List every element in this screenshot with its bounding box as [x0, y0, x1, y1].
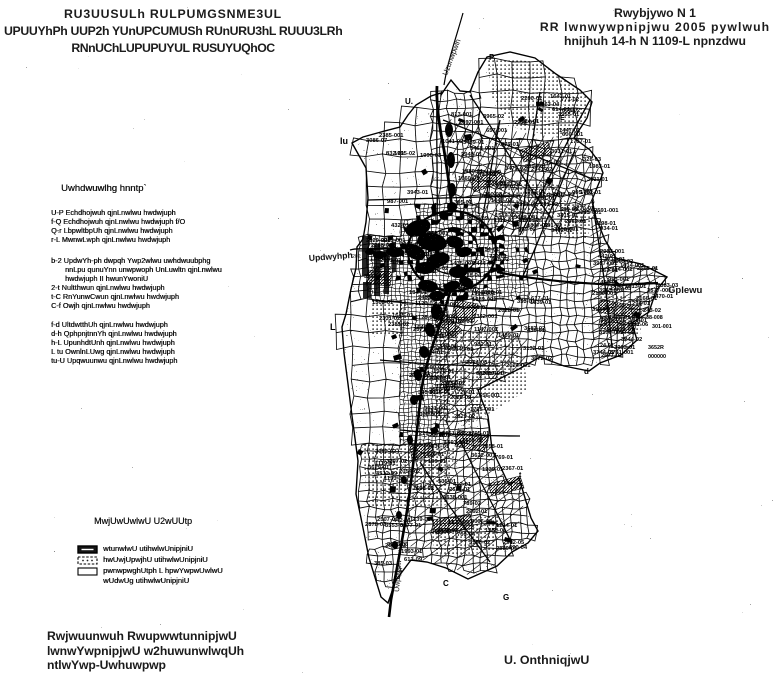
svg-text:3111-01: 3111-01: [432, 334, 453, 340]
svg-text:Iu: Iu: [340, 136, 348, 146]
svg-text:3965-02: 3965-02: [483, 114, 504, 120]
svg-text:3123-001: 3123-001: [453, 284, 478, 290]
svg-text:Uwpqwpw: Uwpqwpw: [394, 559, 403, 592]
svg-text:3297-02: 3297-02: [386, 459, 407, 465]
svg-text:d: d: [584, 367, 589, 376]
svg-text:3845-01: 3845-01: [452, 347, 474, 353]
svg-text:1983-01: 1983-01: [589, 164, 611, 170]
svg-text:3703-01: 3703-01: [467, 305, 489, 311]
svg-text:2017-09: 2017-09: [553, 192, 575, 198]
svg-text:2028-01: 2028-01: [498, 308, 520, 314]
svg-text:2941-02: 2941-02: [531, 167, 552, 173]
svg-text:3490-02: 3490-02: [441, 319, 462, 325]
svg-text:771-02: 771-02: [561, 97, 579, 103]
svg-text:C: C: [443, 579, 449, 588]
svg-text:2874-01: 2874-01: [423, 452, 445, 458]
svg-text:3921-001: 3921-001: [424, 406, 449, 412]
svg-text:2591-001: 2591-001: [594, 208, 619, 214]
svg-text:1001-001: 1001-001: [435, 302, 460, 308]
svg-text:606-001: 606-001: [562, 132, 584, 138]
svg-text:1342-001: 1342-001: [473, 314, 498, 320]
svg-text:38-008: 38-008: [646, 315, 663, 321]
svg-text:987-001: 987-001: [387, 199, 409, 205]
svg-text:2200-01: 2200-01: [521, 96, 543, 102]
svg-text:1983-06: 1983-06: [423, 252, 445, 258]
svg-text:789-02: 789-02: [463, 501, 481, 507]
svg-text:982-01: 982-01: [474, 342, 493, 348]
svg-text:1128-001: 1128-001: [415, 315, 440, 321]
svg-text:656-001: 656-001: [479, 393, 501, 399]
svg-text:3415-01: 3415-01: [557, 213, 579, 219]
svg-text:3652R: 3652R: [648, 345, 664, 351]
svg-text:535-01: 535-01: [438, 479, 457, 485]
svg-text:3062-02: 3062-02: [375, 449, 396, 455]
svg-text:202: 202: [352, 254, 361, 260]
svg-text:1120-02: 1120-02: [415, 301, 436, 307]
svg-text:2062-01: 2062-01: [565, 219, 587, 225]
svg-text:3158-02: 3158-02: [469, 540, 490, 546]
svg-text:301-001: 301-001: [652, 324, 672, 330]
svg-text:2054-02: 2054-02: [399, 469, 420, 475]
svg-text:3029-001: 3029-001: [366, 238, 391, 244]
svg-text:1654-01: 1654-01: [434, 243, 456, 249]
svg-text:2385-02: 2385-02: [388, 322, 409, 328]
svg-text:3104-07: 3104-07: [592, 307, 613, 313]
svg-text:2831-02: 2831-02: [380, 258, 401, 264]
svg-text:729-01: 729-01: [489, 254, 508, 260]
svg-text:1116-001: 1116-001: [414, 231, 439, 237]
svg-text:608-02: 608-02: [373, 266, 391, 272]
svg-text:2675-001: 2675-001: [395, 251, 420, 257]
svg-text:1990-03: 1990-03: [420, 153, 442, 159]
svg-text:363-01: 363-01: [600, 268, 619, 274]
svg-text:953-001: 953-001: [608, 277, 630, 283]
svg-text:2485-01: 2485-01: [418, 295, 440, 301]
svg-text:1160-02: 1160-02: [413, 486, 434, 492]
svg-text:P: P: [489, 53, 495, 62]
svg-text:1995-02: 1995-02: [394, 151, 415, 157]
svg-text:Gplewu: Gplewu: [668, 285, 703, 296]
svg-text:3683-02: 3683-02: [524, 326, 545, 332]
svg-text:1725-001: 1725-001: [470, 407, 495, 413]
svg-text:3266-02: 3266-02: [364, 274, 385, 280]
svg-text:1989-001: 1989-001: [472, 297, 497, 303]
svg-text:1993-01: 1993-01: [401, 549, 423, 555]
svg-text:1505-01: 1505-01: [372, 300, 394, 306]
svg-text:3439-01: 3439-01: [463, 140, 485, 146]
svg-text:3943-01: 3943-01: [407, 190, 429, 196]
svg-text:238-04: 238-04: [463, 273, 482, 279]
svg-text:1435-001: 1435-001: [450, 261, 475, 267]
svg-text:353-01: 353-01: [517, 299, 536, 305]
svg-text:2441-08: 2441-08: [415, 268, 437, 274]
svg-text:3132-01: 3132-01: [523, 346, 545, 352]
svg-text:614-01: 614-01: [552, 107, 571, 113]
svg-text:1153-01: 1153-01: [384, 476, 406, 482]
svg-text:000000: 000000: [648, 354, 666, 360]
svg-text:2385-001: 2385-001: [379, 133, 404, 139]
svg-text:995-001: 995-001: [572, 190, 594, 196]
svg-text:1414-01: 1414-01: [422, 350, 444, 356]
svg-text:2617-01: 2617-01: [482, 371, 504, 377]
svg-text:2110-09: 2110-09: [467, 216, 489, 222]
svg-text:Updwyhph: Updwyhph: [308, 250, 353, 263]
svg-text:3011-01: 3011-01: [587, 177, 609, 183]
svg-text:3565-03: 3565-03: [387, 542, 409, 548]
svg-text:1737-01: 1737-01: [570, 139, 592, 145]
svg-text:934-01: 934-01: [600, 226, 619, 232]
svg-text:2571-01: 2571-01: [413, 327, 435, 333]
svg-text:385-03: 385-03: [374, 561, 393, 567]
svg-text:1214-01: 1214-01: [496, 523, 518, 529]
svg-text:t: t: [519, 472, 522, 479]
svg-text:3795-01: 3795-01: [468, 431, 490, 437]
svg-text:690-04: 690-04: [509, 545, 528, 551]
svg-text:769-01: 769-01: [495, 455, 514, 461]
svg-text:q: q: [570, 105, 575, 114]
svg-text:1754-01: 1754-01: [478, 247, 500, 253]
svg-text:G: G: [503, 593, 509, 602]
svg-text:3672-02: 3672-02: [531, 356, 552, 362]
svg-text:469-01: 469-01: [412, 371, 431, 377]
svg-text:813-001: 813-001: [451, 112, 473, 118]
svg-text:E: E: [560, 115, 565, 122]
svg-text:3966-01: 3966-01: [400, 242, 422, 248]
svg-text:294-01: 294-01: [632, 301, 651, 307]
svg-text:2238-01: 2238-01: [514, 120, 536, 126]
svg-text:3066-001: 3066-001: [416, 412, 441, 418]
svg-text:2224-08: 2224-08: [466, 360, 488, 366]
svg-text:L: L: [330, 322, 336, 332]
svg-text:1041-02: 1041-02: [442, 139, 463, 145]
svg-text:1645-01: 1645-01: [392, 313, 414, 319]
svg-text:U.: U.: [405, 97, 413, 106]
svg-text:3270-02: 3270-02: [573, 206, 594, 212]
svg-text:3031-01: 3031-01: [551, 149, 573, 155]
svg-text:Uzunwpwlh: Uzunwpwlh: [440, 38, 462, 77]
svg-text:613-09: 613-09: [404, 557, 423, 563]
svg-text:432-01: 432-01: [391, 223, 410, 229]
svg-text:3350-001: 3350-001: [554, 227, 579, 233]
svg-text:2358-01: 2358-01: [482, 444, 504, 450]
